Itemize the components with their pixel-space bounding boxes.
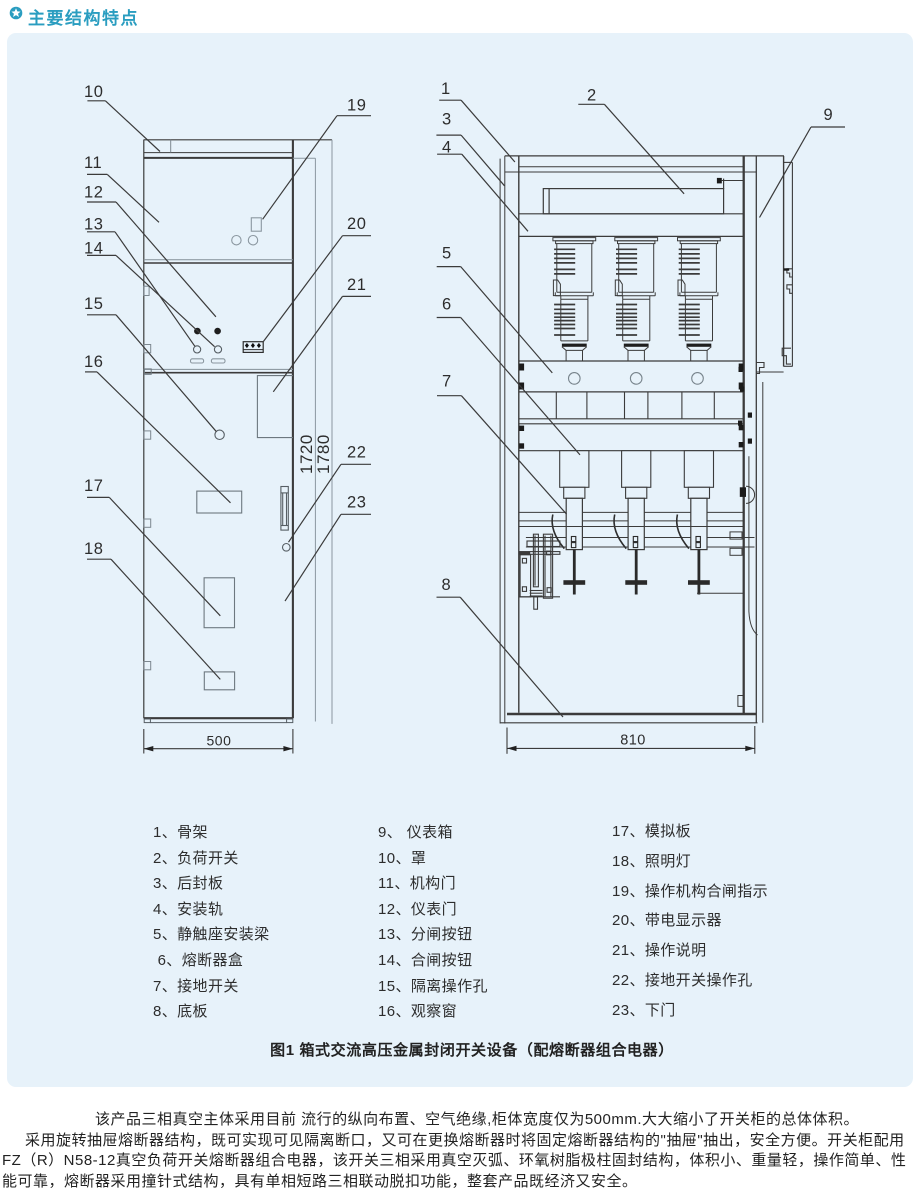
svg-text:8: 8 bbox=[442, 576, 452, 594]
svg-text:15: 15 bbox=[84, 295, 104, 313]
svg-text:7: 7 bbox=[442, 372, 452, 390]
svg-text:19: 19 bbox=[347, 97, 367, 115]
svg-text:21: 21 bbox=[347, 276, 367, 294]
svg-text:18: 18 bbox=[84, 540, 104, 558]
svg-text:10: 10 bbox=[84, 83, 104, 101]
svg-text:20: 20 bbox=[347, 215, 367, 233]
svg-text:1780: 1780 bbox=[314, 434, 333, 474]
svg-text:11: 11 bbox=[84, 154, 102, 172]
svg-text:1: 1 bbox=[441, 80, 451, 98]
svg-text:500: 500 bbox=[207, 733, 232, 749]
svg-text:22: 22 bbox=[347, 444, 367, 462]
svg-text:5: 5 bbox=[442, 245, 452, 263]
svg-text:12: 12 bbox=[84, 184, 104, 202]
svg-text:9: 9 bbox=[824, 106, 834, 124]
svg-text:2: 2 bbox=[587, 87, 597, 105]
svg-text:810: 810 bbox=[620, 732, 645, 748]
svg-text:16: 16 bbox=[84, 353, 104, 371]
svg-text:23: 23 bbox=[347, 494, 367, 512]
svg-text:1720: 1720 bbox=[297, 434, 316, 474]
svg-text:17: 17 bbox=[84, 477, 104, 495]
svg-text:3: 3 bbox=[442, 110, 452, 128]
svg-text:13: 13 bbox=[84, 216, 104, 234]
svg-text:6: 6 bbox=[442, 295, 452, 313]
